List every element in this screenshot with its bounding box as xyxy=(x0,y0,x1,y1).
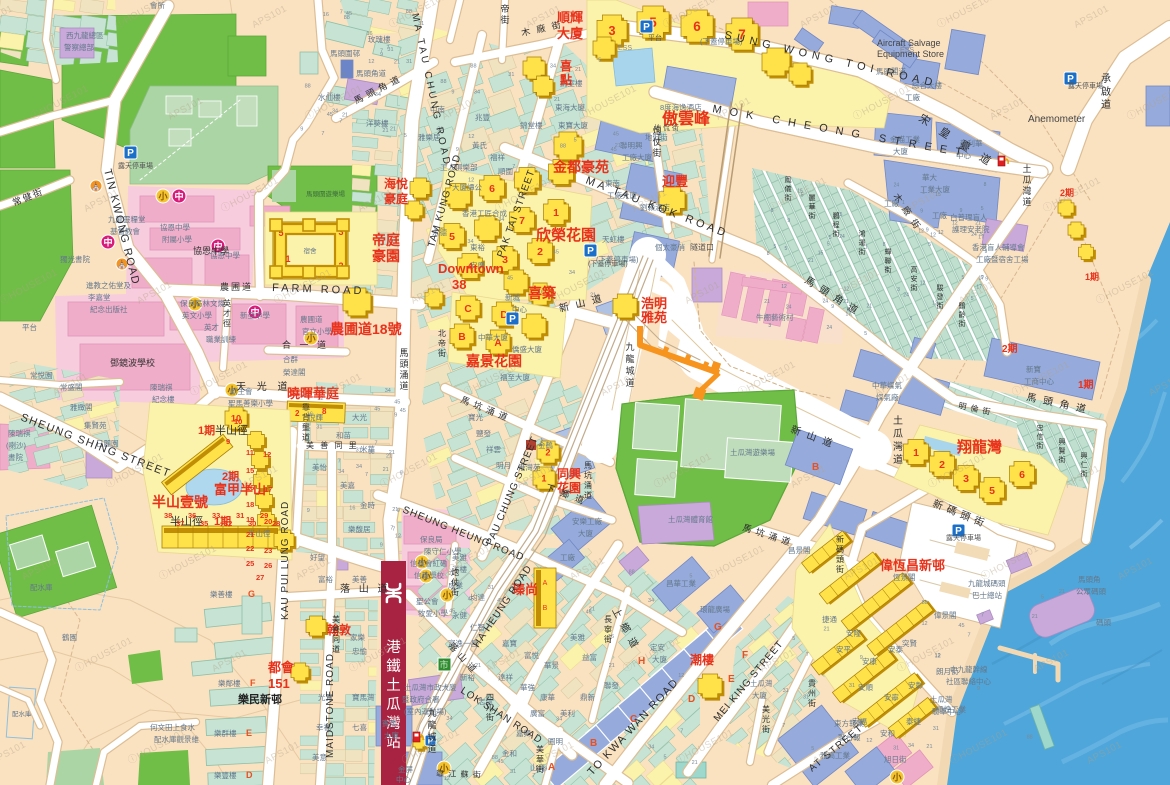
svg-text:牧愛小學: 牧愛小學 xyxy=(418,608,448,618)
svg-text:馬頭角: 馬頭角 xyxy=(1078,574,1101,584)
svg-text:34: 34 xyxy=(446,716,452,722)
svg-text:榮達閣: 榮達閣 xyxy=(283,367,306,377)
svg-text:7: 7 xyxy=(806,652,809,658)
svg-text:9: 9 xyxy=(451,90,454,96)
svg-text:天虹樓: 天虹樓 xyxy=(602,234,625,244)
svg-text:靠: 靠 xyxy=(302,402,310,412)
svg-text:帝庭: 帝庭 xyxy=(372,232,401,248)
svg-text:福祥: 福祥 xyxy=(490,152,505,162)
svg-text:C: C xyxy=(630,714,637,725)
svg-text:宿舍: 宿舍 xyxy=(304,246,318,255)
svg-text:街: 街 xyxy=(500,14,509,25)
svg-text:興: 興 xyxy=(1081,451,1088,460)
svg-text:9: 9 xyxy=(300,126,303,132)
svg-text:45: 45 xyxy=(553,250,559,256)
svg-text:31: 31 xyxy=(381,123,387,129)
svg-text:大廈: 大廈 xyxy=(578,528,593,538)
svg-text:土瓜灣體育館: 土瓜灣體育館 xyxy=(668,514,713,524)
svg-text:中: 中 xyxy=(103,237,112,248)
svg-text:富悅: 富悅 xyxy=(524,650,539,660)
svg-text:7: 7 xyxy=(340,10,343,16)
svg-text:工廠: 工廠 xyxy=(932,210,947,220)
svg-text:背: 背 xyxy=(302,412,310,422)
svg-text:嘉寶: 嘉寶 xyxy=(502,638,517,648)
svg-text:暨政府合署: 暨政府合署 xyxy=(402,694,440,704)
svg-text:聖公會: 聖公會 xyxy=(416,596,439,606)
svg-text:鴻: 鴻 xyxy=(859,229,866,238)
svg-text:街: 街 xyxy=(833,229,840,238)
svg-text:道: 道 xyxy=(1101,98,1111,111)
svg-text:馬頭角道: 馬頭角道 xyxy=(356,68,386,78)
svg-text:北: 北 xyxy=(438,329,446,338)
svg-text:川: 川 xyxy=(486,703,494,712)
svg-text:仗: 仗 xyxy=(652,136,661,147)
svg-text:捷通: 捷通 xyxy=(822,614,837,624)
svg-text:寧: 寧 xyxy=(604,624,612,634)
svg-text:17: 17 xyxy=(264,485,272,494)
svg-text:街: 街 xyxy=(859,247,866,256)
svg-text:5: 5 xyxy=(792,636,795,642)
svg-text:馬頭圍邨: 馬頭圍邨 xyxy=(330,49,360,58)
svg-text:12: 12 xyxy=(263,450,271,459)
svg-text:安: 安 xyxy=(911,274,918,283)
svg-text:美利: 美利 xyxy=(560,708,575,718)
svg-text:5: 5 xyxy=(774,244,777,250)
svg-text:鼎新: 鼎新 xyxy=(580,692,595,702)
svg-text:15: 15 xyxy=(818,250,824,256)
svg-text:KAU PUI LUNG ROAD: KAU PUI LUNG ROAD xyxy=(280,501,291,620)
svg-text:88: 88 xyxy=(344,15,350,21)
svg-text:康華: 康華 xyxy=(540,692,555,702)
svg-text:31: 31 xyxy=(783,688,789,694)
svg-text:12: 12 xyxy=(468,134,474,140)
svg-text:7: 7 xyxy=(365,472,368,478)
svg-text:保良局: 保良局 xyxy=(420,534,443,544)
svg-text:寶光: 寶光 xyxy=(468,412,483,422)
svg-text:金鶴: 金鶴 xyxy=(538,440,553,450)
svg-text:37: 37 xyxy=(176,519,184,528)
svg-text:州: 州 xyxy=(808,689,816,698)
svg-text:安和: 安和 xyxy=(880,728,895,738)
svg-text:農圃道: 農圃道 xyxy=(300,314,323,324)
svg-text:32: 32 xyxy=(224,519,232,528)
svg-text:中華大廈: 中華大廈 xyxy=(478,332,508,342)
svg-text:半山壹號: 半山壹號 xyxy=(152,494,208,510)
svg-text:45: 45 xyxy=(374,407,380,413)
svg-text:24: 24 xyxy=(971,232,977,238)
svg-text:5: 5 xyxy=(989,485,995,497)
svg-text:安隆: 安隆 xyxy=(846,628,861,638)
svg-text:45: 45 xyxy=(497,759,503,765)
svg-text:Equipment Store: Equipment Store xyxy=(877,49,944,59)
svg-text:道: 道 xyxy=(584,490,592,500)
svg-text:5: 5 xyxy=(981,206,984,212)
svg-text:露天停車場: 露天停車場 xyxy=(946,533,981,542)
svg-text:頭: 頭 xyxy=(399,359,408,369)
svg-text:7: 7 xyxy=(968,633,971,639)
svg-text:5: 5 xyxy=(449,231,455,243)
svg-text:12: 12 xyxy=(678,673,684,679)
svg-text:12: 12 xyxy=(781,284,787,290)
svg-text:安順: 安順 xyxy=(858,682,873,692)
svg-text:美雅: 美雅 xyxy=(570,632,585,642)
svg-text:9: 9 xyxy=(445,685,448,691)
svg-text:土: 土 xyxy=(386,677,401,694)
svg-text:長: 長 xyxy=(604,615,612,624)
svg-text:廣富: 廣富 xyxy=(530,708,545,718)
svg-text:21: 21 xyxy=(246,530,254,539)
svg-text:9: 9 xyxy=(226,437,230,446)
svg-text:18: 18 xyxy=(246,500,254,509)
svg-text:35: 35 xyxy=(200,519,208,528)
svg-text:7: 7 xyxy=(339,118,342,124)
svg-text:D: D xyxy=(688,694,695,705)
svg-text:9: 9 xyxy=(860,655,863,661)
svg-text:3: 3 xyxy=(897,287,900,293)
svg-text:運: 運 xyxy=(859,238,866,247)
svg-text:順圍: 順圍 xyxy=(498,167,513,176)
svg-text:街: 街 xyxy=(451,587,459,597)
svg-text:31: 31 xyxy=(406,59,412,65)
svg-text:涌: 涌 xyxy=(399,370,408,380)
svg-text:瓜: 瓜 xyxy=(1022,175,1031,185)
svg-text:道: 道 xyxy=(1022,196,1031,207)
svg-text:9: 9 xyxy=(831,304,834,310)
svg-text:道: 道 xyxy=(893,453,903,466)
svg-text:龍: 龍 xyxy=(625,353,634,364)
svg-text:偉恆昌新邨: 偉恆昌新邨 xyxy=(880,558,945,573)
svg-text:F: F xyxy=(742,650,748,661)
svg-text:英文小學: 英文小學 xyxy=(182,310,212,320)
svg-text:樂善樓: 樂善樓 xyxy=(210,589,233,599)
svg-text:鄧鏡波學校: 鄧鏡波學校 xyxy=(110,357,155,368)
svg-text:21: 21 xyxy=(1059,589,1065,595)
svg-text:中心: 中心 xyxy=(396,774,411,784)
svg-text:樂群樓: 樂群樓 xyxy=(214,728,237,738)
svg-text:街: 街 xyxy=(652,147,661,158)
svg-text:31: 31 xyxy=(849,683,855,689)
svg-text:浩明: 浩明 xyxy=(641,296,667,311)
svg-text:9: 9 xyxy=(920,209,923,215)
svg-text:安康: 安康 xyxy=(862,656,877,666)
svg-text:8: 8 xyxy=(767,251,770,257)
svg-text:151: 151 xyxy=(268,676,290,691)
svg-text:B: B xyxy=(458,332,465,343)
svg-text:21: 21 xyxy=(692,760,698,766)
svg-text:1: 1 xyxy=(285,254,290,264)
svg-text:大光: 大光 xyxy=(352,412,367,422)
svg-text:街: 街 xyxy=(1037,441,1044,450)
svg-text:45: 45 xyxy=(613,132,619,138)
svg-text:馬: 馬 xyxy=(584,461,592,470)
svg-text:牛棚藝術村: 牛棚藝術村 xyxy=(756,312,794,322)
svg-text:馬頭圍遊樂場: 馬頭圍遊樂場 xyxy=(306,189,346,198)
svg-text:1: 1 xyxy=(913,447,919,459)
svg-text:驗車中心: 驗車中心 xyxy=(932,706,962,716)
svg-text:工廠暨宿舍工場: 工廠暨宿舍工場 xyxy=(976,254,1029,264)
svg-text:英: 英 xyxy=(223,298,231,308)
svg-text:配水庫: 配水庫 xyxy=(30,582,53,592)
svg-text:偉景閣: 偉景閣 xyxy=(934,610,957,620)
svg-text:24: 24 xyxy=(786,304,792,310)
svg-text:5: 5 xyxy=(829,235,832,241)
svg-text:半山徑: 半山徑 xyxy=(215,423,248,437)
svg-text:34: 34 xyxy=(908,743,914,749)
svg-text:光: 光 xyxy=(762,714,770,724)
svg-text:同: 同 xyxy=(332,635,340,644)
svg-text:34: 34 xyxy=(648,598,654,604)
svg-text:信: 信 xyxy=(1037,432,1044,441)
svg-text:農圃道: 農圃道 xyxy=(220,281,253,292)
svg-text:鐵: 鐵 xyxy=(386,657,401,675)
svg-text:合 一 道: 合 一 道 xyxy=(282,339,329,350)
svg-text:21: 21 xyxy=(975,221,981,227)
svg-text:街: 街 xyxy=(937,301,944,310)
svg-text:書院: 書院 xyxy=(8,452,23,462)
svg-text:落 山 道: 落 山 道 xyxy=(340,582,391,595)
svg-text:鶴園: 鶴園 xyxy=(62,632,77,642)
svg-text:21: 21 xyxy=(386,454,392,460)
svg-text:駿: 駿 xyxy=(937,283,944,292)
svg-text:進教之佑堂及: 進教之佑堂及 xyxy=(86,280,131,290)
svg-text:華強: 華強 xyxy=(520,682,535,692)
svg-text:88: 88 xyxy=(922,600,928,606)
svg-text:21: 21 xyxy=(1032,614,1038,620)
svg-text:B: B xyxy=(590,738,597,749)
svg-text:34: 34 xyxy=(474,90,480,96)
svg-text:12: 12 xyxy=(938,230,944,236)
svg-text:B: B xyxy=(543,605,548,612)
svg-text:街: 街 xyxy=(438,348,446,358)
svg-text:新亞中學: 新亞中學 xyxy=(240,310,270,320)
svg-text:街: 街 xyxy=(486,712,494,722)
svg-text:12: 12 xyxy=(918,229,924,235)
svg-text:道: 道 xyxy=(332,644,340,654)
svg-text:2: 2 xyxy=(537,246,543,258)
svg-text:38: 38 xyxy=(164,511,172,520)
svg-text:美 善 同 里: 美 善 同 里 xyxy=(306,440,359,450)
svg-text:8: 8 xyxy=(883,242,886,248)
svg-text:22: 22 xyxy=(246,544,254,553)
svg-text:9: 9 xyxy=(544,767,547,773)
svg-text:雅緻閣: 雅緻閣 xyxy=(70,402,93,412)
svg-text:樂馥居: 樂馥居 xyxy=(348,524,371,534)
svg-text:公眾碼頭: 公眾碼頭 xyxy=(1076,587,1106,596)
svg-text:21: 21 xyxy=(808,258,814,264)
svg-text:33: 33 xyxy=(212,511,220,520)
svg-text:21: 21 xyxy=(390,126,396,132)
svg-text:45: 45 xyxy=(958,623,964,629)
svg-text:隧道口: 隧道口 xyxy=(690,242,714,252)
svg-text:美: 美 xyxy=(762,704,770,714)
svg-text:明月: 明月 xyxy=(496,461,511,470)
svg-text:G: G xyxy=(714,622,722,633)
svg-text:12: 12 xyxy=(922,621,928,627)
svg-text:45: 45 xyxy=(400,408,406,414)
svg-text:都會: 都會 xyxy=(267,660,295,675)
svg-text:34: 34 xyxy=(556,716,562,722)
svg-text:四: 四 xyxy=(486,693,494,702)
svg-text:16: 16 xyxy=(323,12,329,18)
svg-text:樂民新邨: 樂民新邨 xyxy=(237,692,282,706)
svg-text:21: 21 xyxy=(764,299,770,305)
svg-text:P: P xyxy=(509,314,516,325)
svg-text:26: 26 xyxy=(264,561,272,570)
svg-text:平台: 平台 xyxy=(648,33,662,42)
svg-text:31: 31 xyxy=(508,72,514,78)
svg-text:兆豐: 兆豐 xyxy=(475,112,490,122)
svg-text:香港盲人輔導會: 香港盲人輔導會 xyxy=(972,242,1025,252)
svg-text:龍: 龍 xyxy=(427,719,436,730)
svg-text:45: 45 xyxy=(586,610,592,616)
svg-text:何文田上食水: 何文田上食水 xyxy=(150,722,195,732)
svg-text:27: 27 xyxy=(256,573,264,582)
svg-text:45: 45 xyxy=(449,608,455,614)
svg-text:9: 9 xyxy=(960,208,963,214)
svg-text:5: 5 xyxy=(962,275,965,281)
svg-text:12: 12 xyxy=(930,233,936,239)
svg-text:聖馬善樂小學: 聖馬善樂小學 xyxy=(228,398,273,408)
svg-text:鵬: 鵬 xyxy=(833,211,840,220)
svg-text:點: 點 xyxy=(560,72,572,87)
svg-text:街: 街 xyxy=(809,211,816,220)
svg-text:同興: 同興 xyxy=(557,466,581,481)
svg-text:集賢苑: 集賢苑 xyxy=(84,420,107,430)
svg-text:街: 街 xyxy=(604,634,612,644)
svg-text:協恩中學: 協恩中學 xyxy=(160,222,190,232)
svg-text:賓馬: 賓馬 xyxy=(382,718,397,728)
svg-text:獨光書院: 獨光書院 xyxy=(60,254,90,264)
svg-text:88: 88 xyxy=(629,569,635,575)
svg-text:蟬: 蟬 xyxy=(885,247,892,256)
svg-text:2期: 2期 xyxy=(222,469,239,483)
svg-text:瓜: 瓜 xyxy=(893,428,903,440)
svg-text:土瓜灣市政大廈: 土瓜灣市政大廈 xyxy=(404,682,457,692)
svg-text:賢: 賢 xyxy=(1059,447,1066,455)
svg-text:樂豐樓: 樂豐樓 xyxy=(214,770,237,780)
svg-text:5: 5 xyxy=(598,58,601,64)
svg-text:9: 9 xyxy=(787,218,790,224)
svg-text:31: 31 xyxy=(488,585,494,591)
svg-text:大廈: 大廈 xyxy=(752,690,767,700)
svg-text:合群: 合群 xyxy=(283,354,298,364)
svg-text:7: 7 xyxy=(375,440,378,446)
svg-text:31: 31 xyxy=(236,511,244,520)
svg-text:12: 12 xyxy=(920,281,926,287)
svg-text:陳守仁小學: 陳守仁小學 xyxy=(424,546,462,556)
svg-text:E: E xyxy=(728,674,735,685)
svg-text:陳瑞祺: 陳瑞祺 xyxy=(150,382,173,392)
svg-text:2期: 2期 xyxy=(1002,342,1018,355)
svg-text:市: 市 xyxy=(439,659,448,670)
svg-text:16: 16 xyxy=(349,506,355,512)
svg-text:21: 21 xyxy=(824,627,830,633)
svg-text:黃氏: 黃氏 xyxy=(472,140,487,150)
svg-text:5: 5 xyxy=(664,755,667,761)
svg-text:21: 21 xyxy=(926,744,932,750)
svg-text:發: 發 xyxy=(937,292,944,301)
svg-text:ESS: ESS xyxy=(618,45,632,52)
svg-text:88: 88 xyxy=(1027,734,1033,740)
svg-text:G: G xyxy=(248,589,255,599)
svg-text:10: 10 xyxy=(234,417,242,426)
svg-text:齡: 齡 xyxy=(959,310,966,319)
svg-text:31: 31 xyxy=(933,726,939,732)
svg-text:貴: 貴 xyxy=(808,678,816,688)
svg-text:9: 9 xyxy=(307,508,310,514)
svg-text:環龍廣場: 環龍廣場 xyxy=(700,604,730,614)
svg-text:靠 江 蘇 街: 靠 江 蘇 街 xyxy=(436,768,482,780)
svg-text:16: 16 xyxy=(367,31,373,37)
svg-text:24: 24 xyxy=(903,292,909,298)
svg-text:陳瑞祺: 陳瑞祺 xyxy=(8,428,31,438)
svg-text:88: 88 xyxy=(440,79,446,85)
svg-text:灣: 灣 xyxy=(1022,185,1031,196)
svg-text:帝: 帝 xyxy=(438,338,446,348)
svg-text:Aircraft Salvage: Aircraft Salvage xyxy=(877,38,941,48)
svg-text:A: A xyxy=(543,580,548,587)
svg-text:21: 21 xyxy=(575,67,581,73)
svg-text:12: 12 xyxy=(468,177,474,183)
svg-text:(下蓋停車場): (下蓋停車場) xyxy=(588,259,628,268)
svg-text:E: E xyxy=(246,728,252,738)
svg-text:9: 9 xyxy=(456,147,459,153)
svg-text:仗: 仗 xyxy=(451,577,459,587)
svg-text:24: 24 xyxy=(839,234,845,240)
svg-text:土瓜灣遊樂場: 土瓜灣遊樂場 xyxy=(730,447,775,457)
svg-text:25: 25 xyxy=(246,559,254,568)
svg-text:34: 34 xyxy=(550,64,556,70)
svg-text:突賢: 突賢 xyxy=(902,638,917,648)
svg-text:3: 3 xyxy=(768,323,771,329)
svg-text:李嘉堂: 李嘉堂 xyxy=(88,292,111,302)
svg-text:鳳: 鳳 xyxy=(785,176,792,184)
svg-text:麗: 麗 xyxy=(809,194,816,202)
svg-text:農圃道18號: 農圃道18號 xyxy=(330,321,402,337)
svg-text:45: 45 xyxy=(507,276,513,282)
svg-text:金和: 金和 xyxy=(502,748,517,758)
svg-text:旭日街: 旭日街 xyxy=(884,754,907,764)
svg-text:碼頭: 碼頭 xyxy=(1096,618,1112,627)
svg-text:21: 21 xyxy=(392,507,398,513)
svg-text:34: 34 xyxy=(356,464,362,470)
svg-text:西九龍總區: 西九龍總區 xyxy=(66,30,104,40)
svg-text:工廠: 工廠 xyxy=(560,552,575,562)
svg-text:頭: 頭 xyxy=(836,555,844,564)
svg-text:美善: 美善 xyxy=(352,574,367,584)
svg-text:潮樓: 潮樓 xyxy=(690,652,714,667)
svg-text:個太豪俏: 個太豪俏 xyxy=(655,242,685,252)
svg-text:45: 45 xyxy=(611,147,617,153)
svg-text:露天停車場: 露天停車場 xyxy=(118,161,153,170)
svg-text:街: 街 xyxy=(911,283,918,292)
svg-text:12: 12 xyxy=(952,221,958,227)
svg-text:昌景閣: 昌景閣 xyxy=(788,546,811,555)
svg-text:21: 21 xyxy=(342,113,348,119)
svg-text:5: 5 xyxy=(811,746,814,752)
svg-text:6: 6 xyxy=(489,183,495,195)
svg-text:2: 2 xyxy=(939,459,945,471)
svg-text:泰捷: 泰捷 xyxy=(906,716,921,726)
svg-text:7: 7 xyxy=(532,773,535,779)
svg-text:7: 7 xyxy=(386,45,389,51)
svg-text:保良局林文燦: 保良局林文燦 xyxy=(180,298,225,308)
svg-text:小: 小 xyxy=(157,191,168,202)
svg-text:聯明興: 聯明興 xyxy=(620,140,643,150)
svg-text:喜: 喜 xyxy=(560,58,572,73)
svg-text:5: 5 xyxy=(827,242,830,248)
svg-text:鹽發: 鹽發 xyxy=(476,428,491,438)
